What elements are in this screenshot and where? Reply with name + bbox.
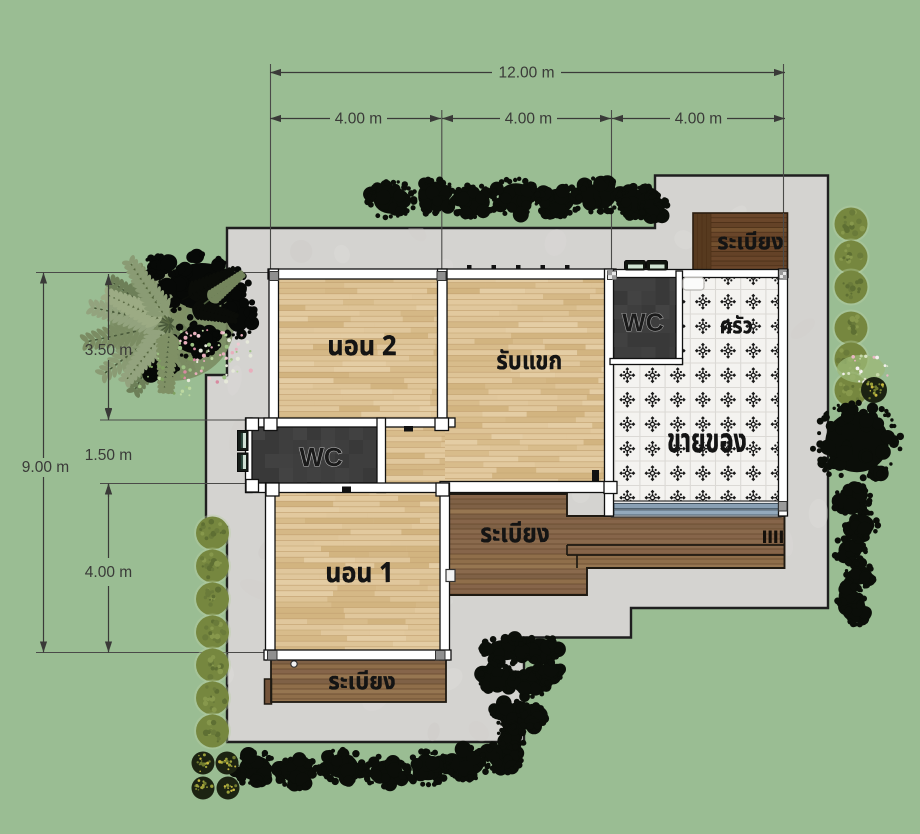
- svg-text:1.50 m: 1.50 m: [85, 447, 132, 464]
- svg-text:WC: WC: [622, 309, 664, 337]
- svg-text:4.00 m: 4.00 m: [335, 111, 382, 128]
- svg-text:WC: WC: [299, 442, 343, 472]
- svg-text:4.00 m: 4.00 m: [505, 111, 552, 128]
- svg-text:9.00 m: 9.00 m: [22, 459, 69, 476]
- svg-text:3.50 m: 3.50 m: [85, 342, 132, 359]
- svg-text:4.00 m: 4.00 m: [675, 111, 722, 128]
- svg-text:4.00 m: 4.00 m: [85, 564, 132, 581]
- svg-text:12.00 m: 12.00 m: [498, 65, 554, 82]
